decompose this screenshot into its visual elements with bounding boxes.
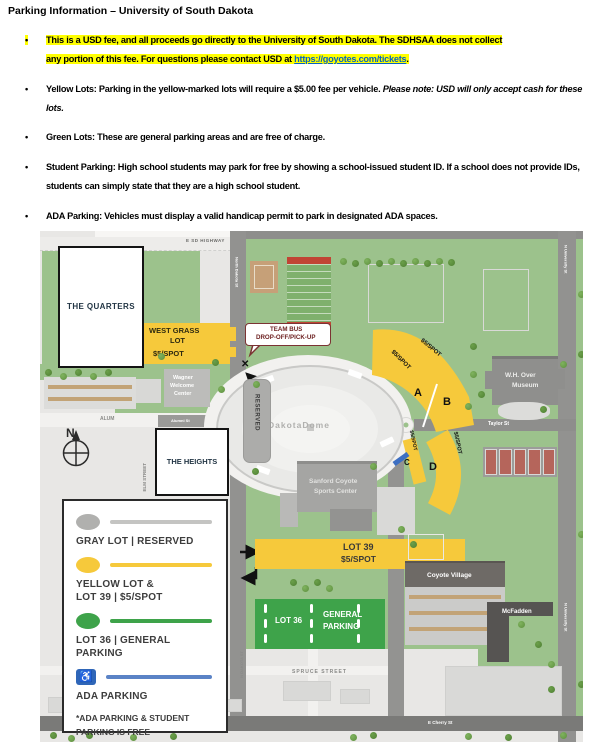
street-label-spruce: SPRUCE STREET	[292, 670, 347, 676]
west-grass-lot: WEST GRASS LOT $5/SPOT	[143, 323, 230, 364]
tree	[548, 686, 555, 693]
tree	[326, 585, 333, 592]
tree	[340, 258, 347, 265]
west-grass-label-line1: WEST GRASS	[149, 327, 199, 335]
map-legend: GRAY LOT | RESERVED YELLOW LOT & LOT 39 …	[62, 499, 228, 733]
tree	[578, 681, 583, 688]
lot39-label: LOT 39	[343, 543, 374, 553]
parking-dash	[357, 604, 360, 613]
tree	[400, 260, 407, 267]
tree	[465, 403, 472, 410]
bullet-ada-parking-text: ADA Parking: Vehicles must display a val…	[46, 207, 598, 226]
street-label-highway: E SD HIGHWAY	[186, 239, 225, 244]
museum-building: W.H. Over Museum	[492, 356, 558, 405]
the-heights-label: THE HEIGHTS	[167, 458, 217, 466]
parking-dash	[264, 634, 267, 643]
tree	[218, 386, 225, 393]
green-lot-swatch	[76, 613, 100, 629]
tickets-link[interactable]: https://goyotes.com/tickets	[294, 54, 406, 64]
street-label-north-dakota: North Dakota St	[234, 257, 238, 287]
the-quarters-label: THE QUARTERS	[67, 303, 135, 312]
parking-dash	[357, 634, 360, 643]
lot39-price: $5/SPOT	[341, 555, 376, 564]
tennis-court	[528, 449, 540, 475]
museum-wing	[557, 369, 565, 389]
lot-d-label: D	[429, 461, 437, 473]
yellow-lot-swatch	[76, 557, 100, 573]
general-label-line2: PARKING	[323, 623, 359, 632]
tree	[45, 369, 52, 376]
tree	[90, 373, 97, 380]
tree	[398, 526, 405, 533]
bullet-usd-fee-line2: any portion of this fee. For questions p…	[46, 54, 294, 64]
bullet-yellow-lots: • Yellow Lots: Parking in the yellow-mar…	[8, 80, 598, 118]
tree	[50, 732, 57, 739]
bullet-marker: •	[25, 158, 46, 196]
coyote-village-building: Coyote Village	[405, 561, 505, 589]
tree	[578, 351, 583, 358]
tree	[350, 734, 357, 741]
street-label-alum: ALUM	[100, 417, 114, 423]
lot36-general-parking: LOT 36 GENERAL PARKING	[255, 599, 385, 649]
compass-n-label: N	[66, 427, 75, 440]
tree	[75, 369, 82, 376]
building	[283, 681, 331, 701]
bullet-ada-parking: • ADA Parking: Vehicles must display a v…	[8, 207, 598, 226]
lot-a-label: A	[414, 387, 422, 399]
street-label-n-university: N University St	[563, 245, 567, 273]
bullet-yellow-lots-text: Yellow Lots: Parking in the yellow-marke…	[46, 84, 383, 94]
ada-wheelchair-icon: ♿	[76, 669, 96, 685]
parking-row	[409, 595, 501, 599]
sanford-sports-center-building: Sanford Coyote Sports Center	[297, 461, 377, 512]
green-lot-line	[110, 619, 212, 623]
tree	[370, 732, 377, 739]
street-label-n-university: N University St	[563, 603, 567, 631]
wagner-label-line3: Center	[174, 391, 191, 397]
practice-field-outline	[368, 264, 444, 323]
sanford-plaza	[377, 487, 415, 535]
practice-field-outline	[483, 269, 529, 331]
tree	[388, 258, 395, 265]
tree	[424, 260, 431, 267]
tree	[540, 406, 547, 413]
tree	[352, 260, 359, 267]
rose-road	[388, 431, 404, 716]
tree	[548, 661, 555, 668]
team-bus-bubble: TEAM BUS DROP-OFF/PICK-UP	[245, 323, 331, 346]
street-label-n-dakota: N DAKOTA ST	[240, 651, 244, 678]
west-grass-label-line2: LOT	[170, 337, 185, 345]
tree	[376, 260, 383, 267]
legend-green-label-line2: PARKING	[76, 647, 216, 660]
wagner-label-line2: Welcome	[170, 383, 194, 389]
tennis-court	[485, 449, 497, 475]
tennis-courts	[483, 447, 557, 477]
wagner-parking	[135, 379, 161, 403]
bullet-student-parking-text: Student Parking: High school students ma…	[46, 158, 598, 196]
team-bus-label-line1: TEAM BUS	[270, 327, 302, 334]
top-road	[246, 231, 583, 239]
the-heights-box: THE HEIGHTS	[155, 428, 229, 496]
mcfadden-label: McFadden	[502, 609, 532, 616]
bullet-green-lots-text: Green Lots: These are general parking ar…	[46, 128, 598, 147]
yellow-tab	[230, 347, 236, 357]
tree	[436, 258, 443, 265]
football-practice-field	[287, 257, 331, 329]
tree	[364, 258, 371, 265]
tree	[412, 258, 419, 265]
tennis-court	[514, 449, 526, 475]
tree	[470, 343, 477, 350]
legend-yellow-label-line1: YELLOW LOT &	[76, 578, 216, 591]
team-bus-label-line2: DROP-OFF/PICK-UP	[256, 335, 315, 342]
legend-note-line2: PARKING IS FREE	[76, 726, 216, 740]
wagner-building: Wagner Welcome Center	[164, 369, 210, 407]
bullet-usd-fee-line1: This is a USD fee, and all proceeds go d…	[46, 35, 502, 45]
bullet-usd-fee: • This is a USD fee, and all proceeds go…	[8, 31, 598, 69]
the-quarters-box: THE QUARTERS	[58, 246, 144, 368]
museum-label-line1: W.H. Over	[505, 372, 536, 379]
street-label-taylor: Taylor St	[488, 422, 509, 428]
yellow-lot-line	[110, 563, 212, 567]
tree	[290, 579, 297, 586]
tree	[212, 359, 219, 366]
page-title: Parking Information – University of Sout…	[8, 5, 598, 17]
campus-parking-map: E SD HIGHWAY North Dakota St North Dakot…	[40, 231, 583, 742]
tree	[370, 463, 377, 470]
legend-ada-label: ADA PARKING	[76, 690, 216, 703]
tree	[105, 369, 112, 376]
bullet-marker: •	[25, 128, 46, 147]
yellow-tab	[230, 327, 236, 341]
document-page: Parking Information – University of Sout…	[0, 0, 612, 742]
bullet-student-parking: • Student Parking: High school students …	[8, 158, 598, 196]
tree	[560, 361, 567, 368]
sanford-label-line1: Sanford Coyote	[309, 478, 357, 485]
sanford-annex-south	[330, 509, 372, 531]
tree	[578, 531, 583, 538]
parking-dash	[310, 619, 313, 628]
coyote-village-label: Coyote Village	[427, 572, 472, 579]
tree	[505, 734, 512, 741]
parking-dash	[310, 604, 313, 613]
legend-yellow-label-line2: LOT 39 | $5/SPOT	[76, 591, 216, 604]
lot36-label: LOT 36	[275, 617, 302, 626]
tree	[158, 353, 165, 360]
tree	[60, 373, 67, 380]
bullet-marker: •	[25, 207, 46, 226]
document-body: Parking Information – University of Sout…	[8, 5, 598, 237]
tree	[302, 585, 309, 592]
tree	[535, 641, 542, 648]
tree	[410, 541, 417, 548]
tree	[68, 735, 75, 742]
dakotadome-label: DakotaDome	[268, 421, 330, 430]
bullet-green-lots: • Green Lots: These are general parking …	[8, 128, 598, 147]
tennis-court	[543, 449, 555, 475]
tree	[560, 732, 567, 739]
green-area	[576, 231, 583, 717]
tree	[314, 579, 321, 586]
parking-row	[48, 385, 132, 389]
bullet-marker: •	[25, 80, 46, 118]
lot-c-label: C	[404, 459, 410, 468]
wagner-label-line1: Wagner	[173, 375, 193, 381]
parking-lot	[44, 377, 136, 409]
tennis-court	[499, 449, 511, 475]
building	[445, 666, 562, 716]
legend-note-line1: *ADA PARKING & STUDENT	[76, 712, 216, 726]
parking-dash	[310, 634, 313, 643]
street-label-elm: ELM STREET	[143, 463, 148, 492]
tree	[518, 621, 525, 628]
end-zone	[287, 257, 331, 264]
tree	[448, 259, 455, 266]
legend-gray-label: GRAY LOT | RESERVED	[76, 535, 216, 548]
museum-label-line2: Museum	[512, 382, 538, 389]
parking-dash	[264, 619, 267, 628]
gray-lot-swatch	[76, 514, 100, 530]
reserved-gray-lot: RESERVED	[243, 379, 271, 463]
gray-lot-line	[110, 520, 212, 524]
building	[340, 689, 370, 704]
bullet-marker: •	[25, 35, 28, 45]
bullet-usd-fee-period: .	[406, 54, 408, 64]
parking-dash	[357, 619, 360, 628]
bus-dropoff-x-icon: ✕	[241, 359, 249, 370]
tree	[252, 468, 259, 475]
tree	[253, 381, 260, 388]
legend-green-label-line1: LOT 36 | GENERAL	[76, 634, 216, 647]
sanford-annex	[280, 493, 298, 527]
tree	[478, 391, 485, 398]
sanford-label-line2: Sports Center	[314, 488, 357, 495]
tree	[465, 733, 472, 740]
tree	[578, 291, 583, 298]
street-label-cherry: E Cherry St	[428, 721, 453, 726]
reserved-label: RESERVED	[253, 394, 260, 431]
parking-row	[48, 397, 132, 401]
street-label-alumni: Alumni St	[171, 419, 190, 423]
parking-dash	[264, 604, 267, 613]
ada-line	[106, 675, 212, 679]
lot-b-label: B	[443, 396, 451, 408]
tree	[470, 371, 477, 378]
basketball-court-lines	[254, 265, 274, 289]
